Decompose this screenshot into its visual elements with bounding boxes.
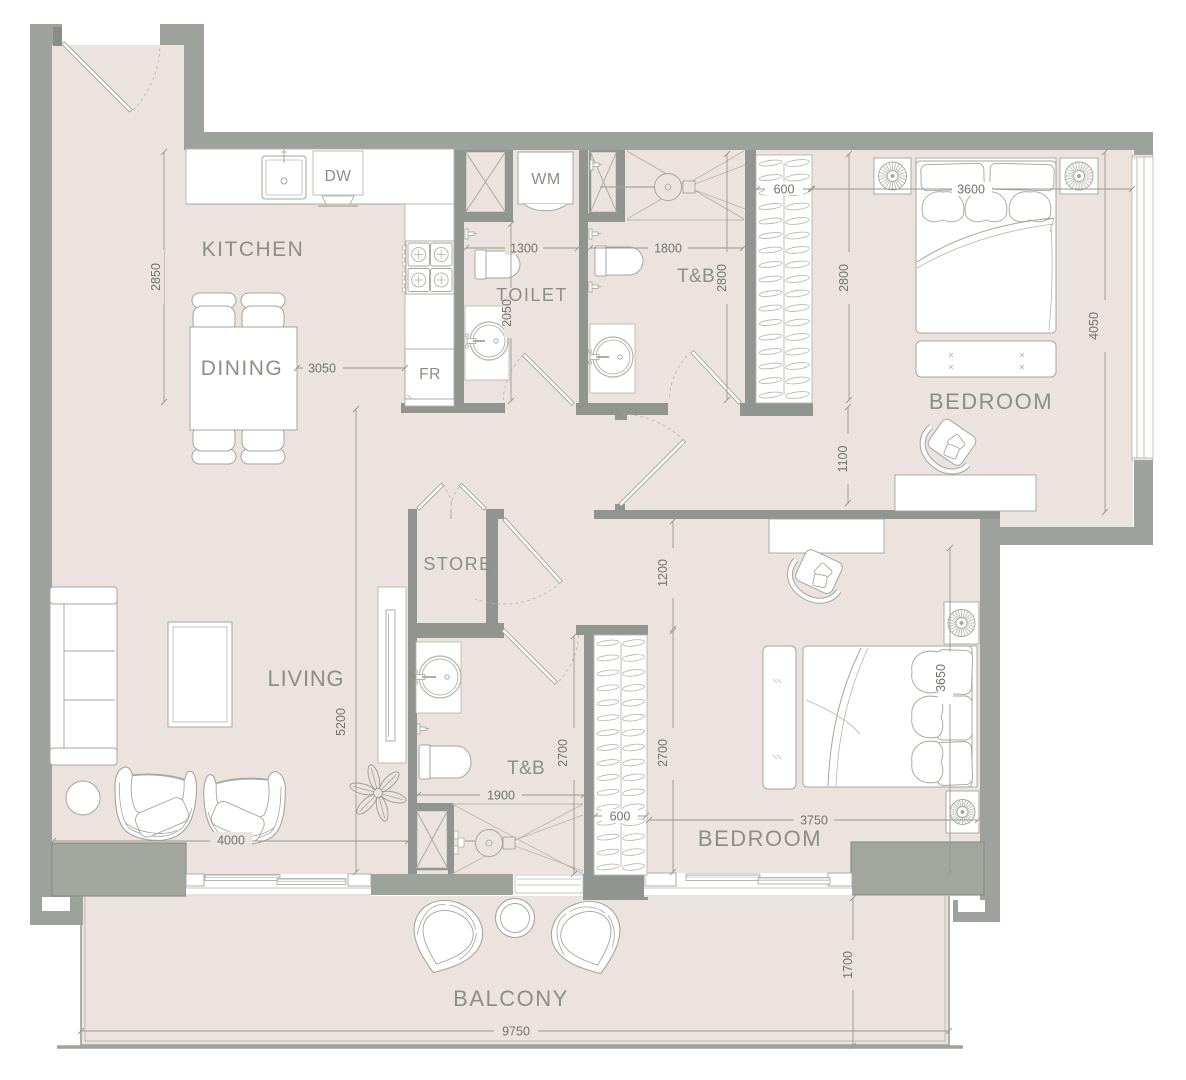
svg-text:BALCONY: BALCONY — [453, 986, 569, 1011]
svg-text:T&B: T&B — [677, 266, 715, 287]
svg-text:BEDROOM: BEDROOM — [929, 389, 1053, 414]
svg-text:KITCHEN: KITCHEN — [202, 238, 305, 261]
svg-text:WM: WM — [531, 171, 560, 188]
svg-text:4050: 4050 — [1087, 312, 1101, 340]
svg-text:9750: 9750 — [502, 1025, 530, 1039]
svg-text:2850: 2850 — [149, 263, 163, 291]
svg-text:FR: FR — [419, 366, 441, 383]
svg-text:2800: 2800 — [715, 264, 729, 292]
svg-text:2700: 2700 — [656, 739, 670, 767]
svg-text:1100: 1100 — [836, 446, 850, 473]
svg-text:4000: 4000 — [217, 834, 245, 848]
svg-text:DW: DW — [325, 168, 352, 185]
svg-text:DINING: DINING — [201, 357, 284, 380]
svg-text:1800: 1800 — [654, 242, 682, 256]
svg-text:3600: 3600 — [957, 183, 985, 197]
svg-text:T&B: T&B — [507, 758, 545, 779]
svg-text:STORE: STORE — [423, 554, 492, 574]
svg-text:1200: 1200 — [656, 559, 670, 587]
svg-text:TOILET: TOILET — [496, 285, 568, 305]
svg-text:2700: 2700 — [556, 739, 570, 767]
svg-text:5200: 5200 — [334, 708, 348, 736]
svg-text:LIVING: LIVING — [268, 666, 345, 691]
svg-text:3650: 3650 — [934, 664, 948, 692]
svg-text:1300: 1300 — [510, 242, 538, 256]
svg-text:600: 600 — [774, 183, 795, 197]
svg-text:1700: 1700 — [841, 951, 855, 979]
svg-text:3050: 3050 — [308, 362, 336, 376]
svg-text:2800: 2800 — [837, 264, 851, 292]
svg-text:1900: 1900 — [487, 789, 515, 803]
svg-text:BEDROOM: BEDROOM — [698, 826, 822, 851]
svg-text:600: 600 — [610, 810, 631, 824]
